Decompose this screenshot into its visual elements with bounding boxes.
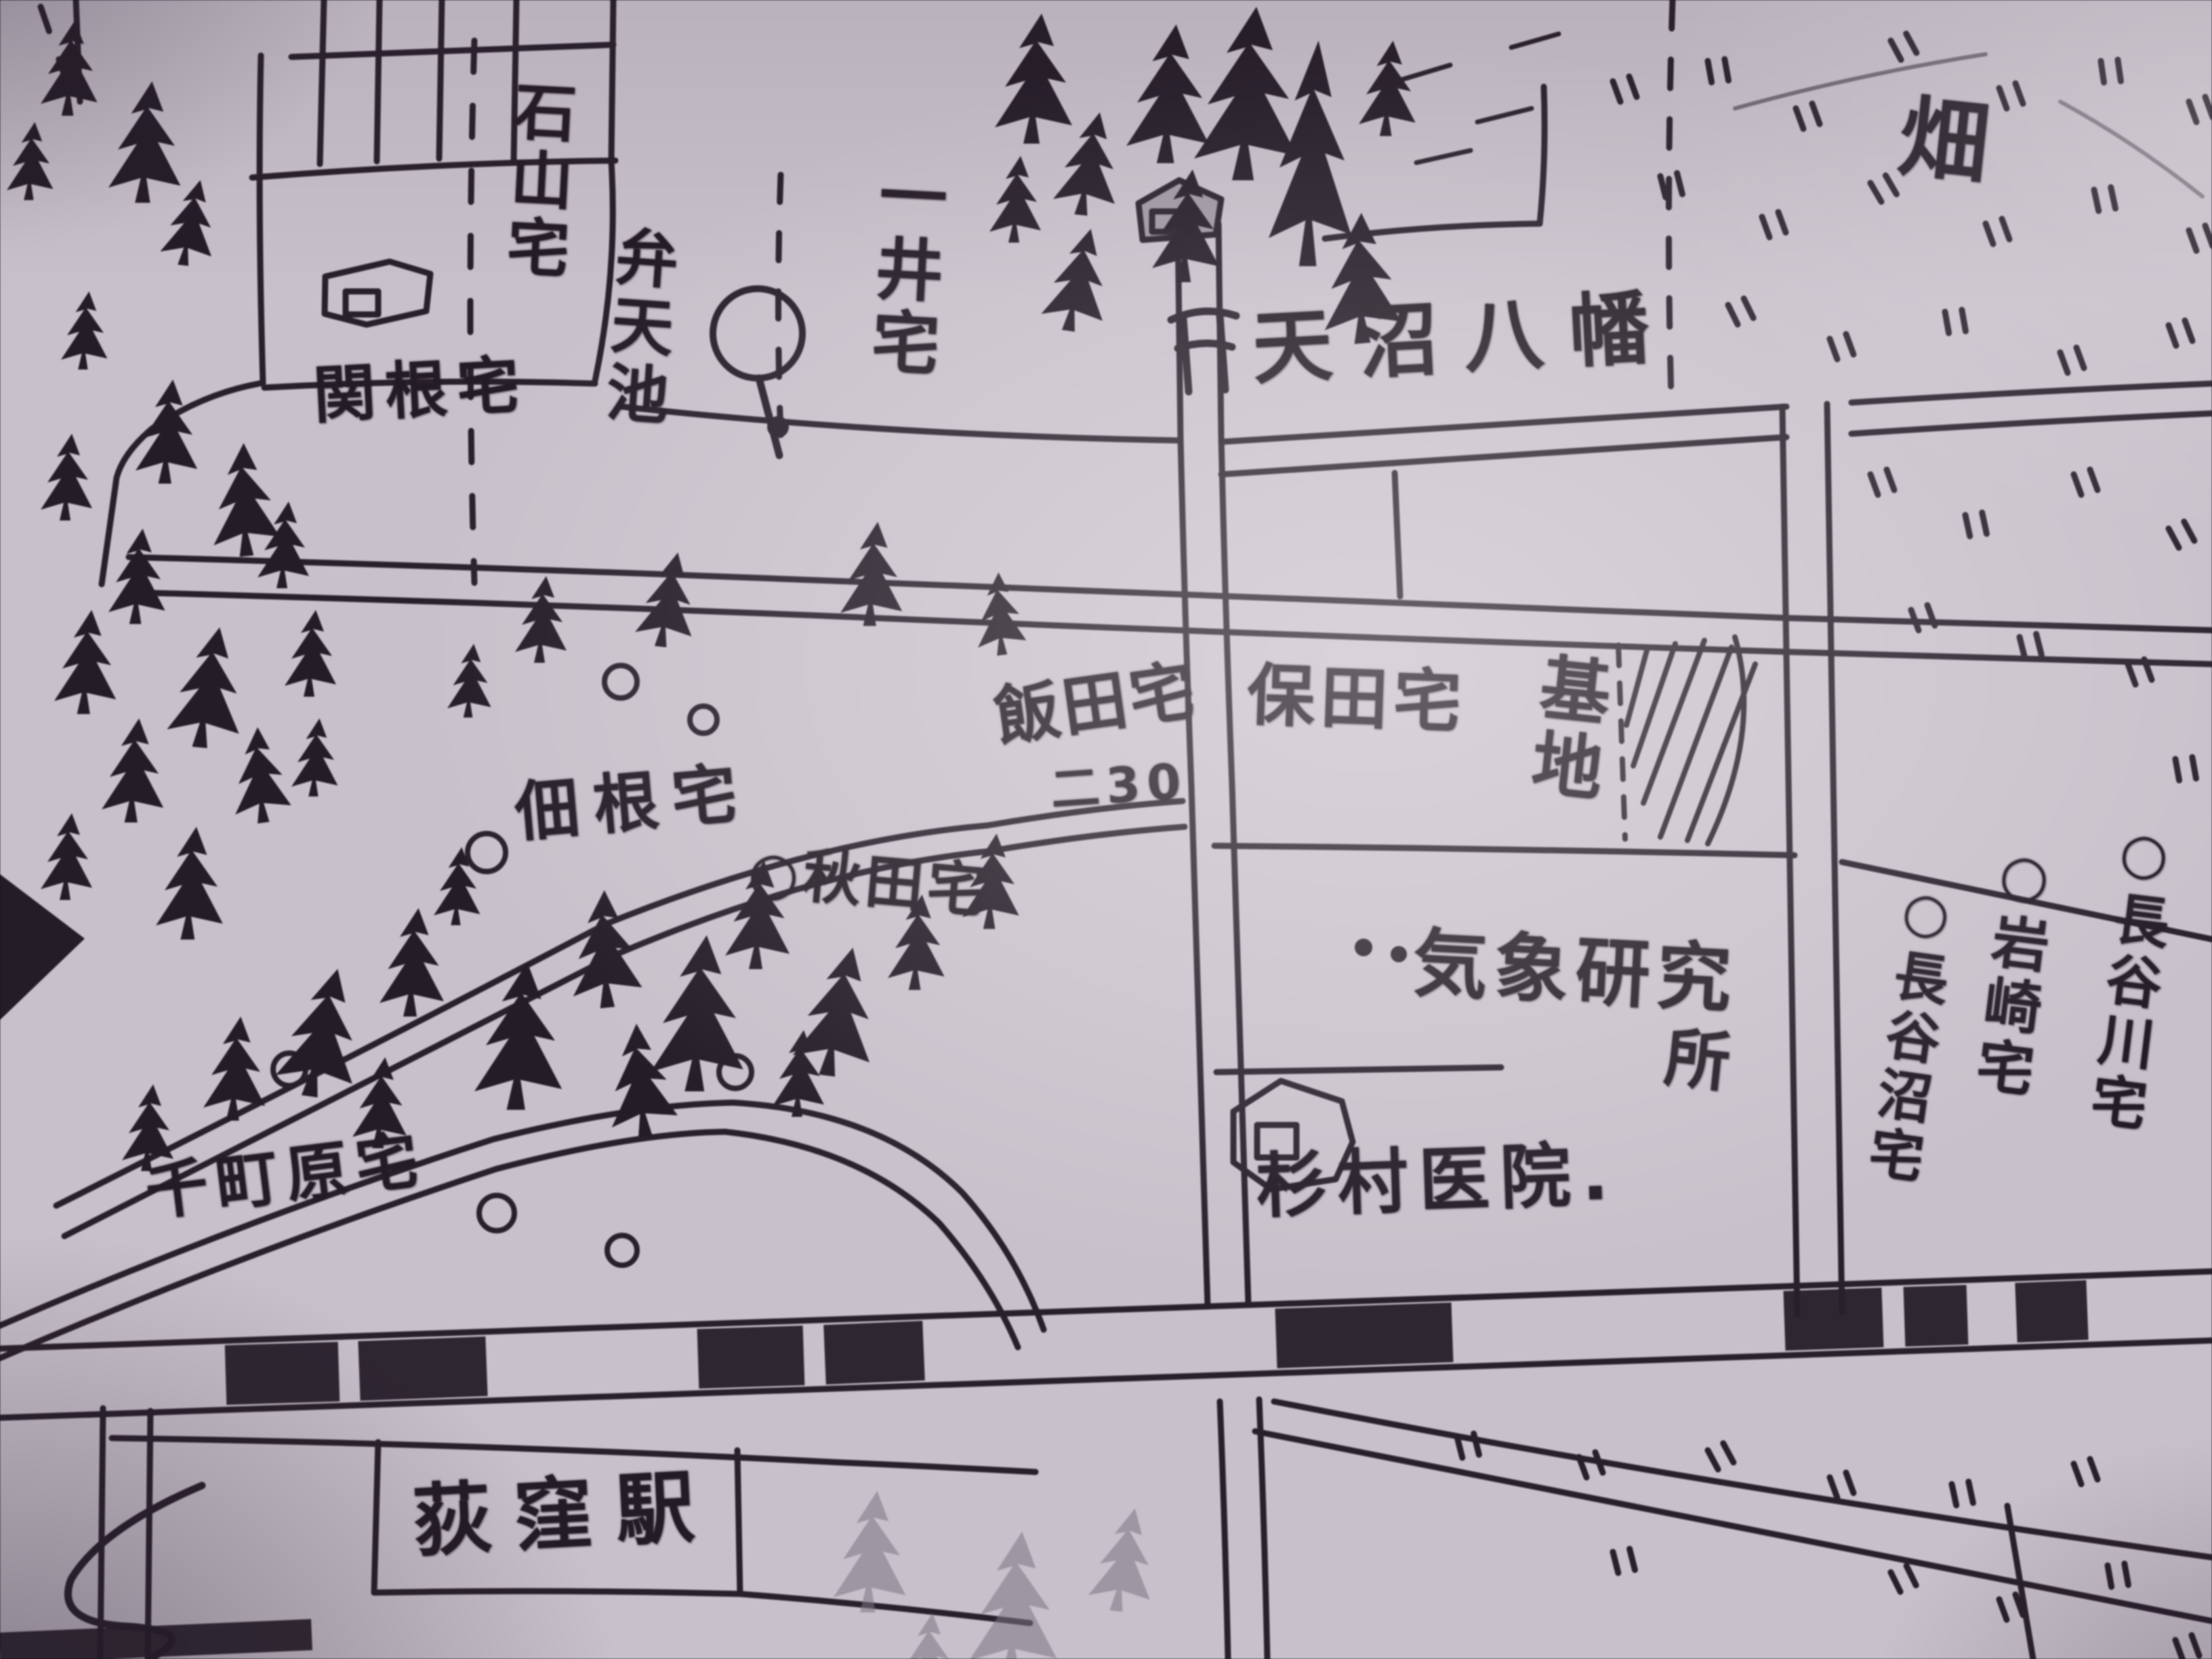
map-label-ichii-taku: 一井宅	[863, 159, 943, 382]
map-label-kenkyu-sho: 所	[1662, 1025, 1734, 1097]
map-labels: 石山宅弁天池一井宅天沼八幡畑関根宅保田宅基地飯田宅二30佃根宅○秋田宅気象研究所…	[0, 0, 2212, 1659]
map-label-hatake: 畑	[1895, 91, 1993, 192]
map-label-yasuda-taku: 保田宅	[1246, 661, 1467, 737]
map-label-hasegawa-taku: ○長谷川宅	[2082, 819, 2176, 1137]
map-label-benten-ike: 弁天池	[598, 224, 676, 431]
map-label-kichi: 基地	[1521, 649, 1609, 808]
map-label-amanuma-hachiman: 天沼八幡	[1250, 286, 1677, 390]
map-label-hasenuma-taku: ○長谷沼宅	[1860, 878, 1958, 1189]
map-label-senchohara-taku: 千町原宅	[142, 1128, 430, 1225]
map-label-kisho-kenkyu: 気象研究	[1411, 925, 1740, 1018]
map-label-tsukune-taku: 佃根宅	[512, 760, 753, 847]
map-label-sekine-taku: 関根宅	[312, 353, 530, 428]
map-label-iwasaki-taku: ○岩崎宅	[1967, 839, 2057, 1103]
map-photo: 石山宅弁天池一井宅天沼八幡畑関根宅保田宅基地飯田宅二30佃根宅○秋田宅気象研究所…	[0, 0, 2212, 1659]
map-label-ishiyama-taku: 石山宅	[499, 78, 573, 284]
map-label-sugimura-iin: 杉村医院.	[1255, 1138, 1620, 1223]
map-label-ogikubo-eki: 荻窪駅	[411, 1467, 720, 1563]
map-label-lot-ni-30: 二30	[1049, 756, 1189, 815]
map-label-akita-taku: ○秋田宅	[745, 842, 991, 923]
map-label-iida-taku: 飯田宅	[991, 657, 1202, 752]
